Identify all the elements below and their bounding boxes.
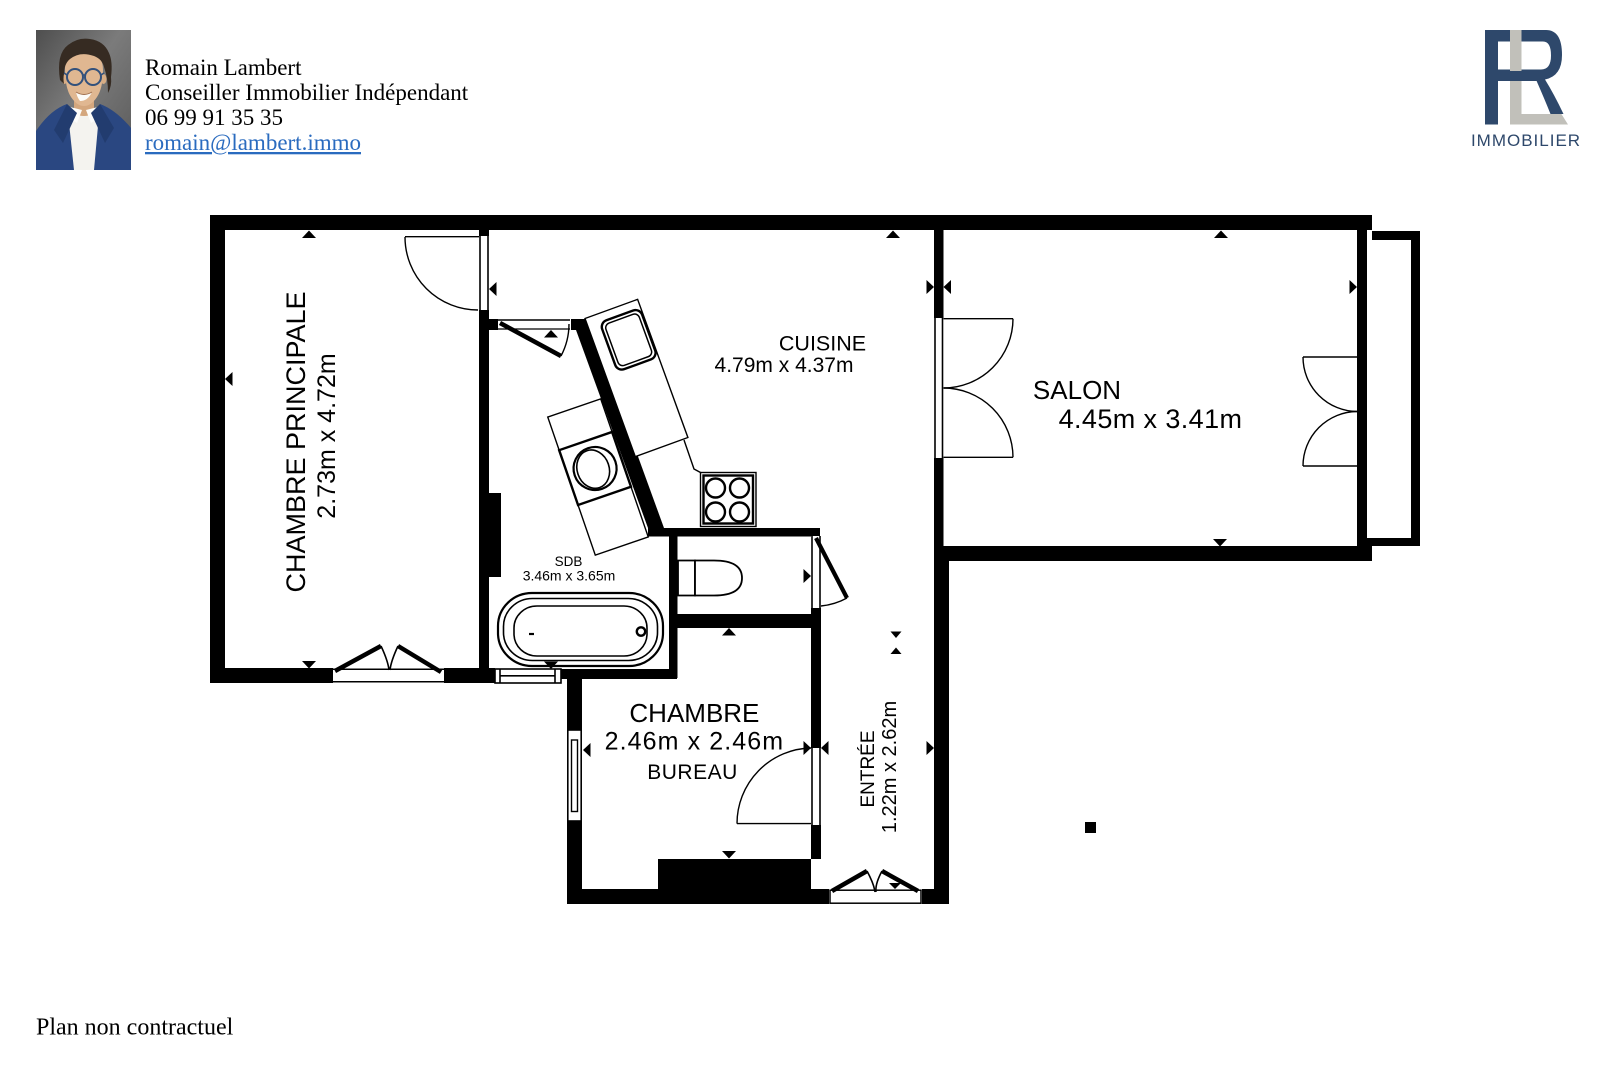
- svg-text:2.46m x 2.46m: 2.46m x 2.46m: [605, 728, 785, 756]
- svg-text:06 99 91 35 35: 06 99 91 35 35: [145, 105, 283, 130]
- svg-text:Conseiller Immobilier Indépend: Conseiller Immobilier Indépendant: [145, 80, 469, 105]
- svg-text:1.22m x 2.62m: 1.22m x 2.62m: [879, 701, 901, 833]
- svg-text:Romain Lambert: Romain Lambert: [145, 55, 302, 80]
- svg-text:2.73m x 4.72m: 2.73m x 4.72m: [313, 353, 341, 518]
- svg-text:Plan non contractuel: Plan non contractuel: [36, 1015, 234, 1041]
- svg-text:CHAMBRE PRINCIPALE: CHAMBRE PRINCIPALE: [281, 291, 311, 592]
- svg-text:ENTRÉE: ENTRÉE: [858, 730, 879, 807]
- svg-text:CUISINE: CUISINE: [779, 332, 866, 356]
- svg-text:4.45m x 3.41m: 4.45m x 3.41m: [1059, 404, 1243, 434]
- svg-text:CHAMBRE: CHAMBRE: [629, 698, 759, 728]
- svg-text:3.46m x 3.65m: 3.46m x 3.65m: [523, 568, 616, 584]
- svg-text:SALON: SALON: [1033, 375, 1121, 405]
- svg-text:BUREAU: BUREAU: [647, 761, 738, 784]
- svg-text:IMMOBILIER: IMMOBILIER: [1471, 131, 1581, 150]
- svg-text:4.79m x 4.37m: 4.79m x 4.37m: [715, 354, 854, 377]
- svg-text:romain@lambert.immo: romain@lambert.immo: [145, 130, 361, 155]
